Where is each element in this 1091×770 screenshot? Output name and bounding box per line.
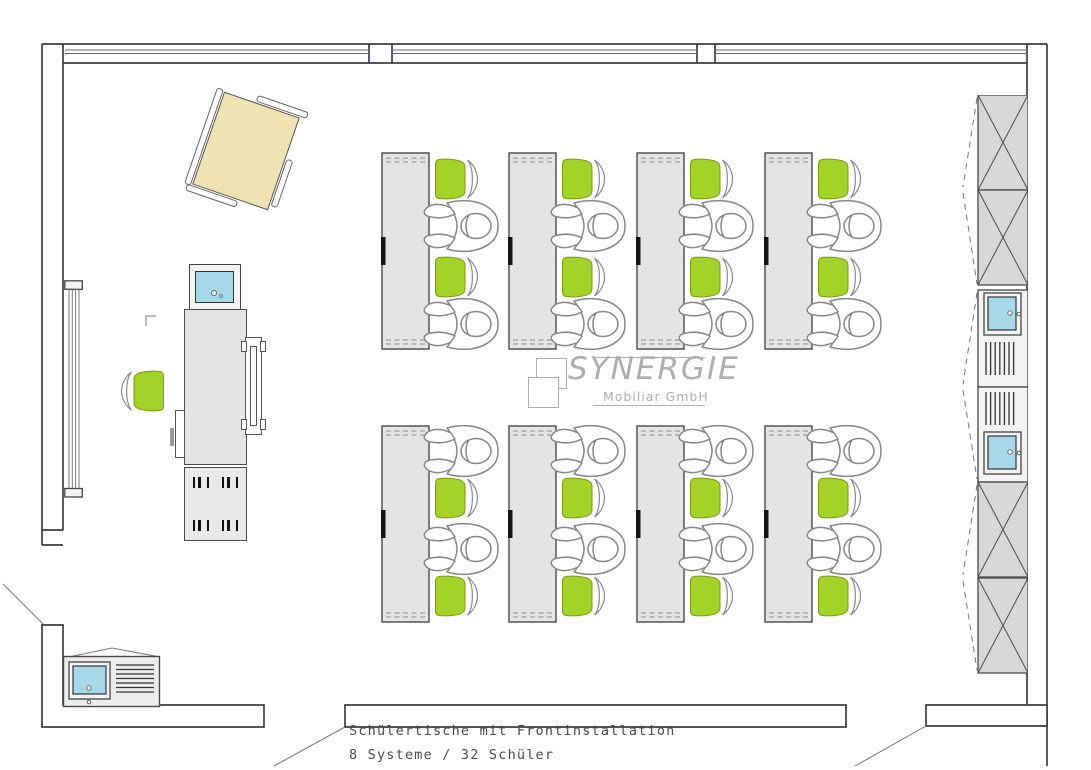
student-desk-group [764, 425, 886, 623]
storage-cabinet [978, 578, 1028, 673]
logo-name: SYNERGIE [568, 351, 740, 387]
student-desk-group [636, 425, 758, 623]
rail-inner [250, 346, 257, 426]
caption-line-2: 8 Systeme / 32 Schüler [349, 743, 675, 767]
student-desk-group [508, 152, 630, 350]
door-swing-bottom-right [855, 726, 926, 766]
desk-side-handle [175, 410, 185, 458]
logo-subtitle: Mobiliar GmbH [603, 389, 709, 404]
cabinet-mark [193, 477, 209, 488]
teacher-desk [184, 309, 247, 465]
wall-left [42, 44, 63, 545]
caption-line-1: Schülertische mit Frontinstallation [349, 719, 675, 743]
window-wall-top [42, 44, 1047, 63]
storage-cabinet [978, 482, 1028, 577]
storage-cabinet [978, 95, 1028, 190]
teacher-cabinet [184, 467, 247, 541]
door-swing-left [3, 584, 45, 626]
door-swing-bottom-left [274, 727, 345, 766]
rail-nub [241, 341, 247, 352]
desk-side-handle-grip [170, 428, 174, 446]
pc-cabinet [978, 290, 1028, 387]
rail-nub [241, 419, 247, 430]
printer-station [62, 646, 162, 708]
cabinet-mark [222, 520, 238, 531]
student-desk-group [764, 152, 886, 350]
student-desk-group [381, 152, 503, 350]
cabinet-mark [193, 520, 209, 531]
student-desk-group [508, 425, 630, 623]
door-swing-dashes [963, 98, 977, 670]
logo-square-icon [528, 377, 559, 408]
wall-radiator [64, 280, 84, 498]
storage-cabinet [978, 190, 1028, 285]
classroom-floor-plan: SYNERGIE Mobiliar GmbH Schülertische mit… [0, 0, 1091, 770]
wall-bottom-right [926, 705, 1047, 726]
teacher-chair [120, 370, 164, 412]
teacher-monitor [189, 264, 241, 311]
storage-cabinet-column [960, 95, 1028, 674]
station-monitor [69, 662, 110, 704]
synergie-logo: SYNERGIE Mobiliar GmbH [523, 349, 718, 411]
teacher-side-rail [245, 337, 262, 435]
wall-right [1027, 44, 1047, 766]
plan-caption: Schülertische mit Frontinstallation 8 Sy… [349, 719, 675, 767]
rail-nub [260, 419, 266, 430]
cabinet-mark [222, 477, 238, 488]
pc-cabinet [978, 387, 1028, 482]
student-desk-group [636, 152, 758, 350]
student-desk-group [381, 425, 503, 623]
corner-mark [146, 316, 156, 326]
station-vents [116, 665, 154, 692]
rail-nub [260, 341, 266, 352]
logo-underline [593, 405, 705, 406]
